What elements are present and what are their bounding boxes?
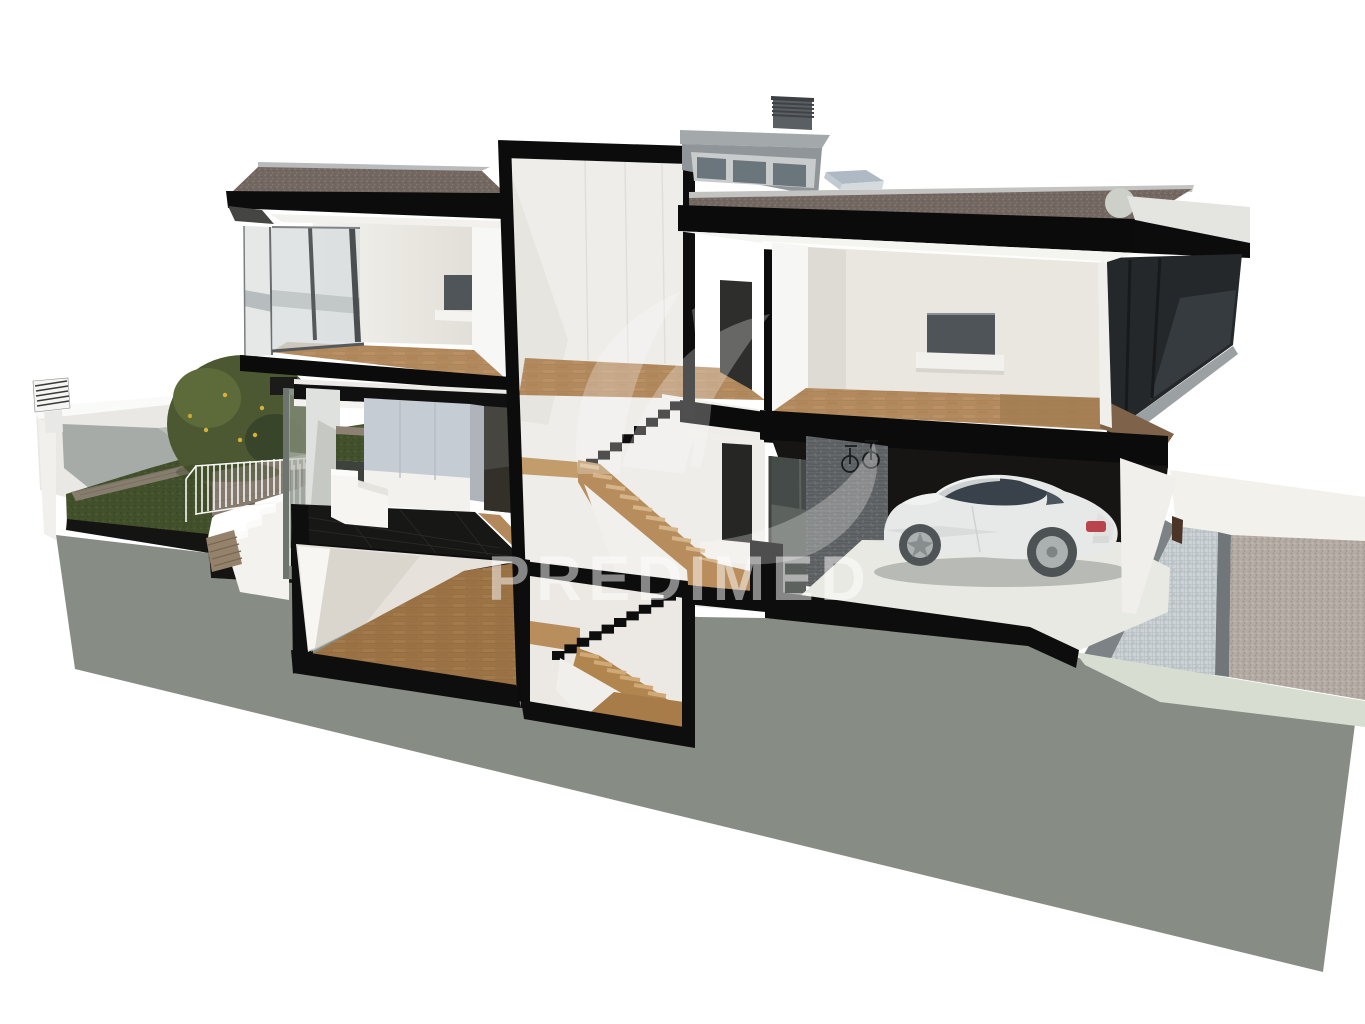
svg-text:PREDIMED: PREDIMED [488, 544, 873, 614]
